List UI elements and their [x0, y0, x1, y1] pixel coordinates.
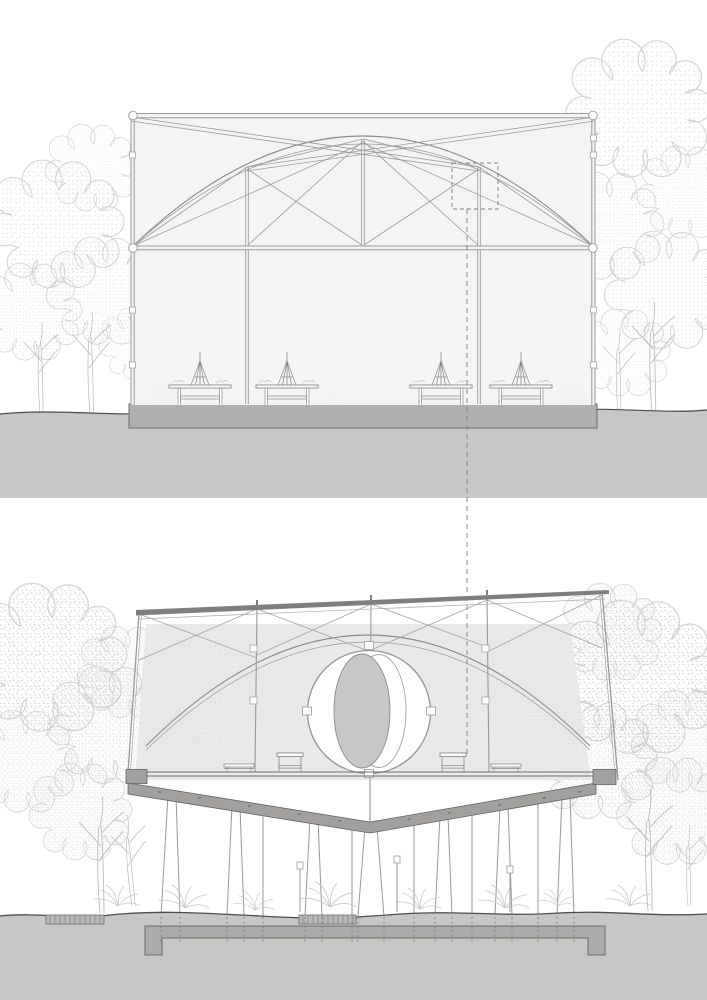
- butterfly-floor-slab: [128, 783, 596, 833]
- drawing-canvas: [0, 0, 707, 1000]
- lower-section-drawing: [0, 583, 707, 1000]
- section-roof: [136, 590, 609, 619]
- upper-building-fill: [131, 113, 595, 405]
- upper-elevation-drawing: [0, 39, 707, 498]
- architectural-sheet: [0, 0, 707, 1000]
- upper-base-slab: [129, 404, 597, 428]
- understory-vegetation: [94, 882, 652, 910]
- lower-ground-fill: [0, 912, 707, 1000]
- foundation-piles: [161, 795, 574, 916]
